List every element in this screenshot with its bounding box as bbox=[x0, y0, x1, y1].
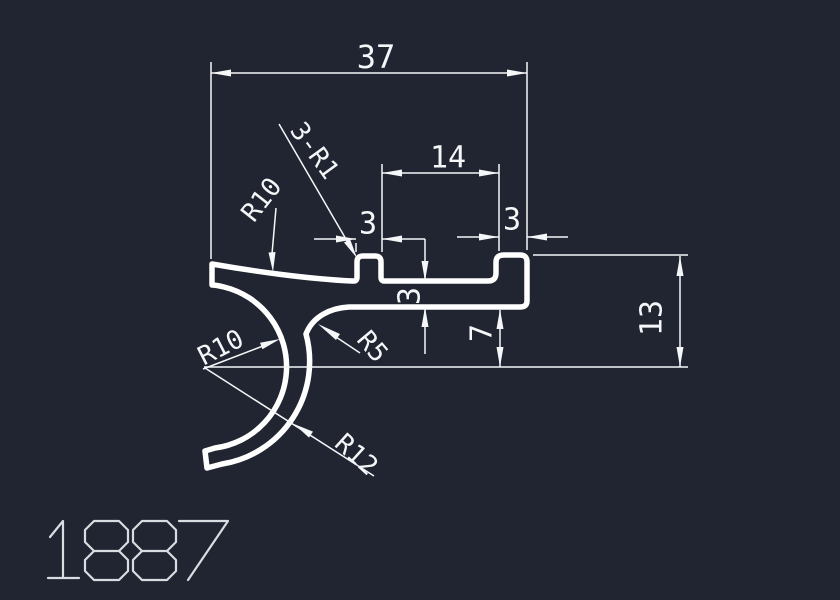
arrowhead bbox=[260, 339, 280, 349]
arrowhead bbox=[507, 70, 527, 77]
arrowhead bbox=[479, 170, 499, 177]
arrowhead bbox=[677, 256, 684, 276]
arrowhead bbox=[677, 347, 684, 367]
digit-1 bbox=[48, 521, 79, 578]
radius-fillet-label: R5 bbox=[350, 325, 393, 368]
arrowhead bbox=[211, 70, 231, 77]
dim-slot-width-label: 3 bbox=[359, 207, 377, 242]
dim-web-drop-label: 7 bbox=[465, 324, 500, 342]
cad-drawing-canvas: 37 14 3 3 3 7 13 R10 3-R1 R10 R5 R12 bbox=[0, 0, 840, 600]
dimension-lines bbox=[203, 62, 688, 476]
arrowhead bbox=[422, 307, 429, 327]
digit-7 bbox=[179, 521, 228, 580]
digit-8 bbox=[133, 521, 176, 580]
arrowhead bbox=[479, 234, 499, 241]
arrowhead bbox=[527, 234, 547, 241]
digit-8 bbox=[85, 521, 128, 580]
dim-end-height-label: 13 bbox=[635, 300, 670, 336]
dim-web-thickness-label: 3 bbox=[393, 287, 428, 305]
part-number bbox=[48, 521, 228, 580]
arrowhead bbox=[294, 424, 313, 438]
arrowhead bbox=[497, 347, 504, 367]
dim-step-width-label: 3 bbox=[503, 203, 521, 238]
radius-outer-label: R12 bbox=[329, 428, 384, 482]
dim-inner-width-label: 14 bbox=[430, 141, 466, 176]
radius-hook-label: R10 bbox=[193, 324, 248, 372]
arrowhead bbox=[382, 170, 402, 177]
corner-note-label: 3-R1 bbox=[283, 117, 344, 185]
arrowhead bbox=[269, 252, 276, 272]
dim-total-width-label: 37 bbox=[357, 38, 396, 76]
radius-top-label: R10 bbox=[236, 172, 289, 227]
arrowhead bbox=[382, 236, 402, 243]
arrowhead bbox=[344, 239, 357, 258]
arrowhead bbox=[318, 324, 340, 340]
dimension-labels: 37 14 3 3 3 7 13 R10 3-R1 R10 R5 R12 bbox=[193, 38, 669, 482]
leader-r10-top bbox=[272, 208, 276, 254]
technical-drawing: 37 14 3 3 3 7 13 R10 3-R1 R10 R5 R12 bbox=[0, 0, 840, 600]
arrowhead bbox=[422, 261, 429, 281]
